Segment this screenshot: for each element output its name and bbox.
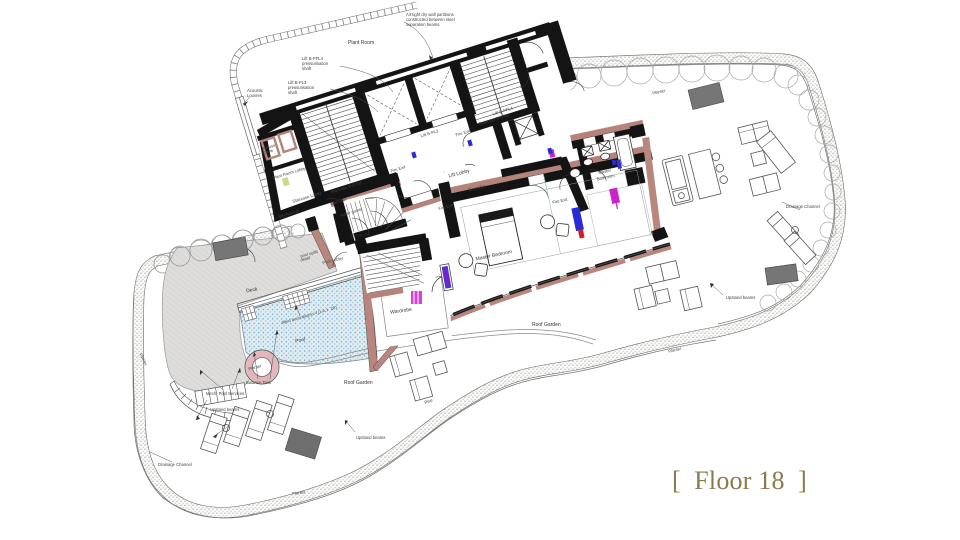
svg-text:Balance Tank: Balance Tank bbox=[246, 380, 272, 385]
svg-text:Roof Garden: Roof Garden bbox=[344, 380, 373, 386]
svg-text:Drainage Channel: Drainage Channel bbox=[158, 462, 192, 467]
svg-text:Mech. Pool Services: Mech. Pool Services bbox=[206, 391, 244, 396]
svg-text:Upstand beams: Upstand beams bbox=[356, 435, 385, 440]
svg-text:Upstand beams: Upstand beams bbox=[210, 407, 239, 412]
svg-text:shaft: shaft bbox=[302, 66, 312, 71]
svg-text:Plant Room: Plant Room bbox=[348, 40, 374, 46]
svg-text:[ Floor 18 ]: [ Floor 18 ] bbox=[672, 466, 807, 495]
svg-text:Planter: Planter bbox=[652, 88, 667, 96]
svg-text:Drainage Channel: Drainage Channel bbox=[786, 204, 820, 209]
svg-text:Upstand beams: Upstand beams bbox=[726, 295, 755, 300]
svg-text:separation beams.: separation beams. bbox=[406, 22, 440, 27]
svg-text:shaft: shaft bbox=[288, 90, 298, 95]
svg-text:Louvres: Louvres bbox=[247, 93, 262, 98]
svg-text:Roof Garden: Roof Garden bbox=[532, 322, 561, 328]
